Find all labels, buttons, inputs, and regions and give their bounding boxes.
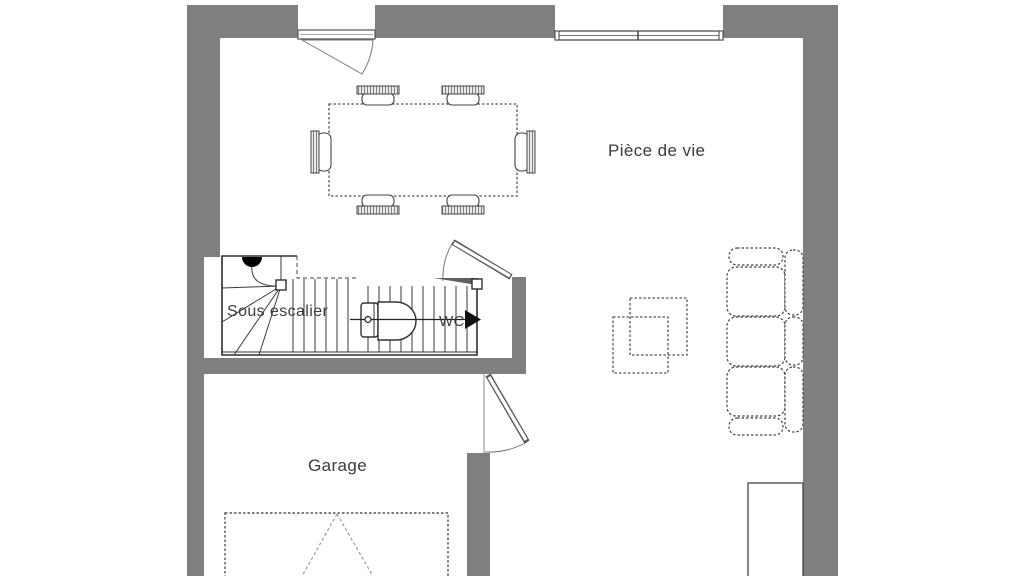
dining-chair xyxy=(515,131,535,173)
sofa-backrest xyxy=(785,250,803,315)
dining-chair xyxy=(311,131,331,173)
label-garage: Garage xyxy=(308,456,367,475)
sofa-seat-cushion xyxy=(727,367,785,416)
chair-back xyxy=(357,86,399,94)
chair-back xyxy=(311,131,319,173)
dining-set xyxy=(311,86,535,214)
dining-chair xyxy=(357,86,399,105)
garage-top-wall xyxy=(187,358,523,374)
dining-chair xyxy=(442,86,484,105)
garage-right-wall xyxy=(467,453,490,576)
chair-back xyxy=(442,206,484,214)
dining-chair xyxy=(357,195,399,214)
stair-newel-post-right xyxy=(472,279,482,289)
living-room-window xyxy=(555,31,723,40)
chair-seat xyxy=(447,195,479,207)
top-wall-mid-segment xyxy=(375,5,555,38)
window-end-cap-right xyxy=(719,31,723,40)
chair-seat xyxy=(362,93,394,105)
right-wall xyxy=(803,5,838,576)
stair-direction-start-circle xyxy=(365,317,371,323)
label-wc: WC xyxy=(439,313,465,330)
toilet-bowl xyxy=(378,302,416,340)
chair-back xyxy=(527,131,535,173)
chair-seat xyxy=(447,93,479,105)
stair-newel-post-left xyxy=(276,280,286,290)
window-end-cap-left xyxy=(555,31,559,40)
sofa-backrest xyxy=(785,367,803,432)
floorplan-drawing: Pièce de vie Sous escalier WC Garage xyxy=(0,0,1024,576)
sofa-seat-cushion xyxy=(727,317,785,366)
dining-chair xyxy=(442,195,484,214)
left-wall-lower xyxy=(187,257,204,576)
chair-back xyxy=(357,206,399,214)
sofa-backrest xyxy=(785,317,803,365)
chair-seat xyxy=(362,195,394,207)
sofa-armrest-bottom xyxy=(729,418,783,435)
label-living-room: Pièce de vie xyxy=(608,141,705,160)
sofa xyxy=(727,248,803,435)
label-under-stairs: Sous escalier xyxy=(227,303,329,320)
counter-block xyxy=(748,483,803,576)
dining-table xyxy=(329,104,517,196)
floorplan-canvas: Pièce de vie Sous escalier WC Garage xyxy=(0,0,1024,576)
left-wall-upper xyxy=(187,5,220,257)
sofa-seat-cushion xyxy=(727,267,785,316)
wc-door-wall-stub xyxy=(512,277,526,374)
sofa-armrest-top xyxy=(729,248,783,265)
chair-back xyxy=(442,86,484,94)
